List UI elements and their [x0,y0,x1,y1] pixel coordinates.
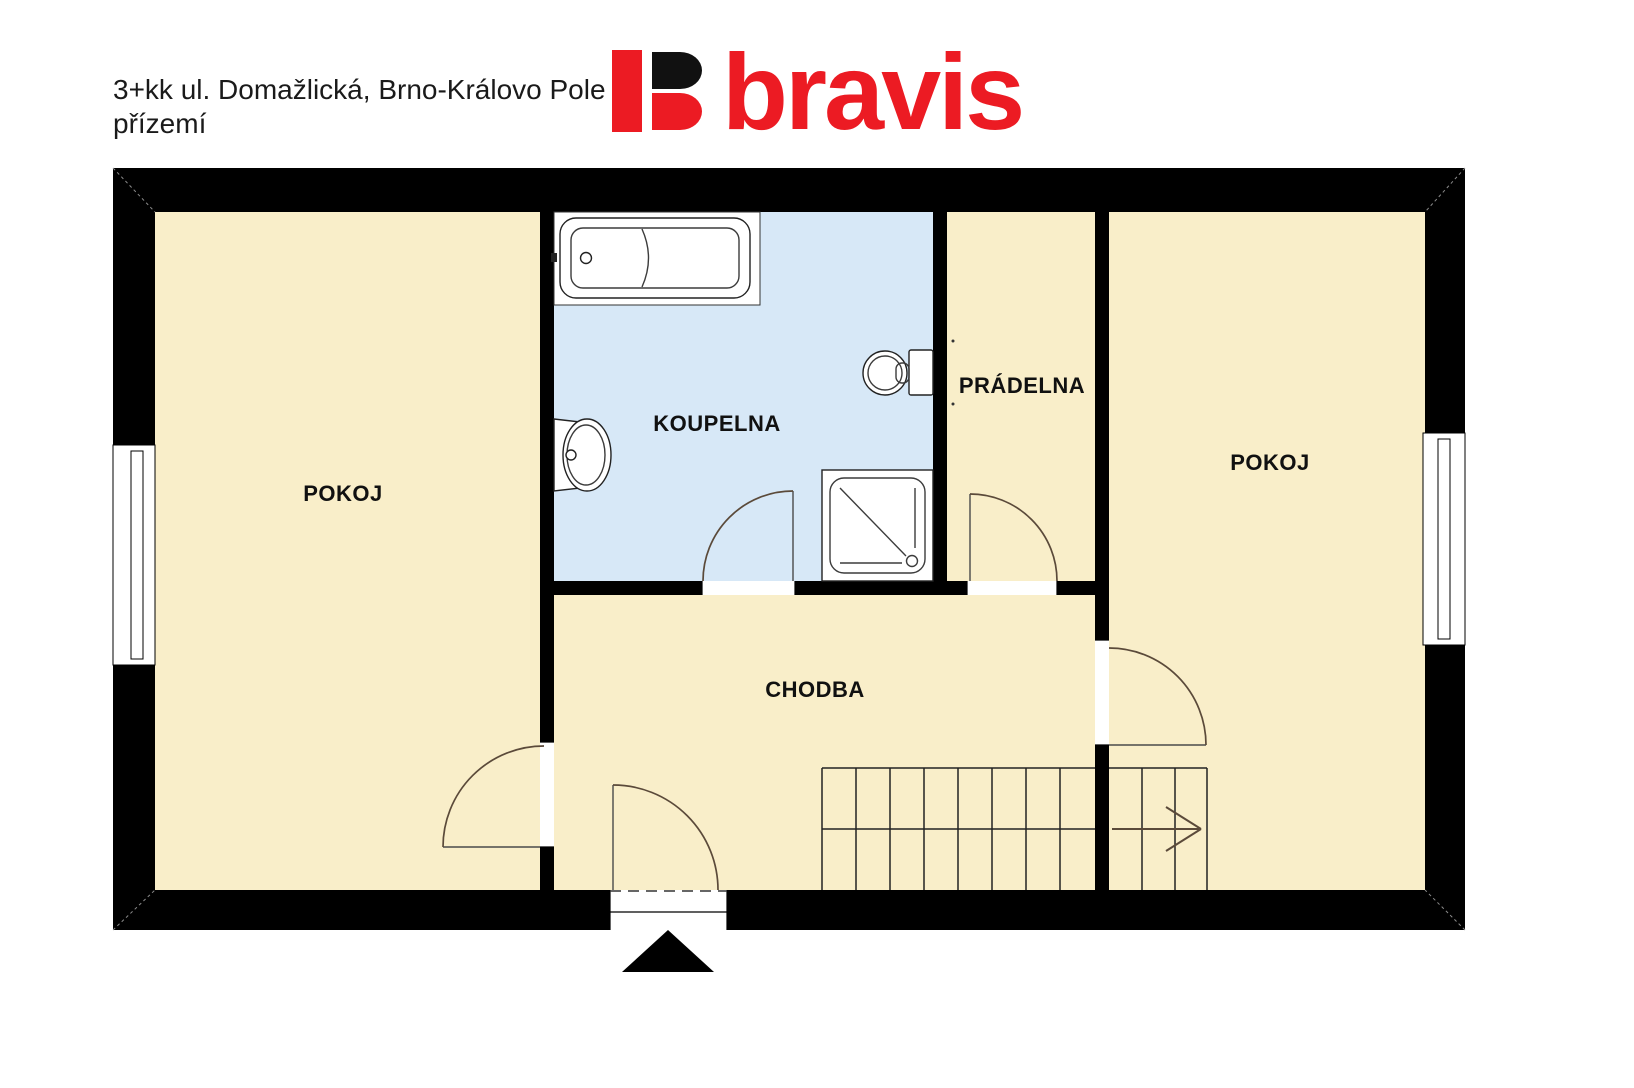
logo-bar [612,50,642,132]
wall-dot [952,403,955,406]
wall-dot [952,340,955,343]
sink [554,419,611,491]
label-pradelna: PRÁDELNA [959,373,1085,398]
window-left [113,445,155,665]
bravis-logo: bravis [612,31,1022,152]
floorplan-page: 3+kk ul. Domažlická, Brno-Královo Pole p… [0,0,1634,1088]
logo-bowl-bottom [652,93,702,130]
window-right [1423,433,1465,645]
bathtub [551,212,760,305]
label-chodba: CHODBA [765,677,865,702]
room-chodba [554,595,1095,890]
logo-bowl-top [652,52,702,89]
room-pokoj-right [1109,212,1425,890]
floorplan-svg: 3+kk ul. Domažlická, Brno-Královo Pole p… [0,0,1634,1088]
page-title-line1: 3+kk ul. Domažlická, Brno-Královo Pole [113,74,606,105]
page-title-line2: přízemí [113,108,207,139]
entrance-marker-triangle [622,930,714,972]
label-pokoj-left: POKOJ [303,481,383,506]
header: 3+kk ul. Domažlická, Brno-Královo Pole p… [113,31,1022,152]
toilet [863,350,933,395]
room-pokoj-left [155,212,540,890]
label-pokoj-right: POKOJ [1230,450,1310,475]
logo-wordmark: bravis [722,31,1022,152]
shower [822,470,933,581]
label-koupelna: KOUPELNA [653,411,780,436]
